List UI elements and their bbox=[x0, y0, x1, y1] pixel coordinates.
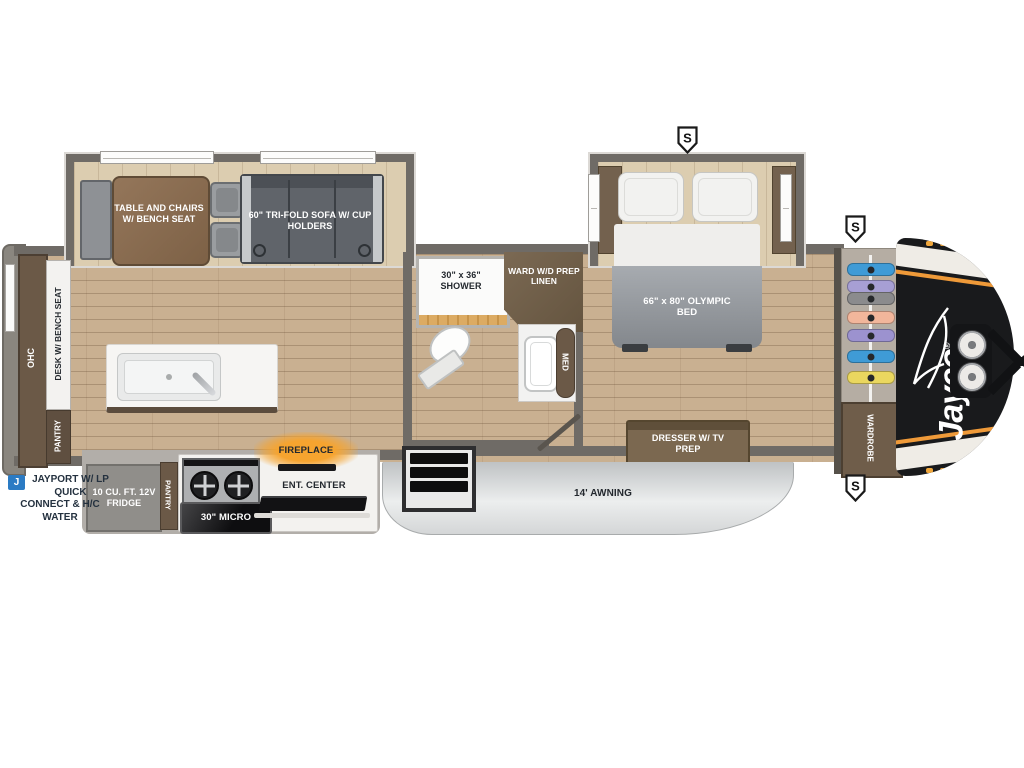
bedroom-front-wall bbox=[834, 248, 841, 474]
pantry-kitchen-label: PANTRY bbox=[164, 480, 173, 510]
propane-tank bbox=[957, 362, 987, 392]
clothes-hanger bbox=[847, 350, 895, 363]
dresser-label: DRESSER W/ TV PREP bbox=[643, 433, 733, 454]
svg-text:S: S bbox=[683, 131, 692, 146]
fireplace-label: FIREPLACE bbox=[256, 445, 356, 456]
burner bbox=[190, 471, 219, 500]
ward-label: WARD W/D PREP LINEN bbox=[508, 266, 580, 286]
desk-label: DESK W/ BENCH SEAT bbox=[53, 287, 63, 380]
bed-foot bbox=[726, 344, 752, 352]
dinette-chair bbox=[210, 222, 244, 258]
jayport-callout: JJAYPORT W/ LP QUICK CONNECT & H/C WATER bbox=[8, 474, 112, 524]
clothes-hanger bbox=[847, 329, 895, 342]
rv-floorplan: TABLE AND CHAIRS W/ BENCH SEAT 60" TRI-F… bbox=[0, 0, 1024, 768]
sofa-label: 60" TRI-FOLD SOFA W/ CUP HOLDERS bbox=[244, 210, 376, 231]
bath-wall-left bbox=[403, 252, 412, 452]
marker-light bbox=[926, 468, 933, 473]
speaker-marker: S bbox=[845, 474, 866, 502]
clothes-hanger bbox=[847, 292, 895, 305]
bed-foot bbox=[622, 344, 648, 352]
shower-label: 30" x 36" SHOWER bbox=[420, 270, 502, 291]
entertainment-tv bbox=[259, 496, 368, 511]
marker-light bbox=[940, 241, 947, 246]
speaker-marker: S bbox=[677, 126, 698, 154]
counter-lip bbox=[254, 513, 370, 518]
rear-window bbox=[5, 264, 15, 332]
window bbox=[260, 151, 376, 164]
window bbox=[100, 151, 214, 164]
sofa-backrest bbox=[242, 176, 382, 188]
marker-light bbox=[926, 241, 933, 246]
dinette-chair bbox=[210, 182, 244, 218]
window bbox=[588, 174, 600, 242]
micro-label: 30" MICRO bbox=[201, 512, 251, 523]
bed-blanket: 66" x 80" OLYMPIC BED bbox=[612, 266, 762, 348]
cup-holder bbox=[253, 244, 266, 257]
wardrobe-label: WARDROBE bbox=[866, 414, 875, 462]
bath-sink bbox=[524, 336, 558, 392]
hitch-a-frame bbox=[988, 328, 1024, 396]
window bbox=[780, 174, 792, 242]
med-label: MED bbox=[561, 353, 570, 371]
svg-text:S: S bbox=[851, 479, 860, 494]
ent-center-label: ENT. CENTER bbox=[256, 480, 372, 491]
cup-holder bbox=[358, 244, 371, 257]
speaker-marker: S bbox=[845, 215, 866, 243]
olympic-bed: 66" x 80" OLYMPIC BED bbox=[612, 166, 762, 354]
pillow bbox=[618, 172, 684, 222]
burner bbox=[224, 471, 253, 500]
cooktop bbox=[182, 458, 260, 504]
kitchen-sink bbox=[117, 353, 221, 401]
step-tread bbox=[410, 481, 468, 492]
awning-label: 14' AWNING bbox=[543, 488, 663, 500]
clothes-hanger bbox=[847, 263, 895, 276]
pantry-rear-label: PANTRY bbox=[54, 420, 63, 452]
microwave: 30" MICRO bbox=[180, 502, 272, 534]
step-tread bbox=[410, 467, 468, 478]
sink-drain bbox=[166, 374, 172, 380]
jayport-label: JAYPORT W/ LP QUICK CONNECT & H/C WATER bbox=[20, 474, 109, 523]
clothes-hanger bbox=[847, 371, 895, 384]
svg-text:S: S bbox=[851, 220, 860, 235]
bench-seat bbox=[80, 180, 112, 260]
wardrobe-wd-prep bbox=[504, 252, 583, 332]
ohc-label: OHC bbox=[26, 348, 36, 368]
bed-sheet bbox=[614, 224, 760, 270]
fireplace-unit bbox=[278, 464, 336, 471]
clothes-hanger bbox=[847, 311, 895, 324]
kitchen-island bbox=[106, 344, 278, 413]
shower bbox=[416, 256, 510, 328]
pillow bbox=[692, 172, 758, 222]
dinette-label: TABLE AND CHAIRS W/ BENCH SEAT bbox=[112, 203, 206, 224]
bed-label: 66" x 80" OLYMPIC BED bbox=[642, 296, 732, 318]
jayport-badge: J bbox=[8, 475, 25, 490]
dresser: DRESSER W/ TV PREP bbox=[626, 420, 750, 468]
shower-threshold bbox=[419, 315, 507, 325]
marker-light bbox=[940, 468, 947, 473]
entry-steps bbox=[402, 446, 476, 512]
propane-tank bbox=[957, 330, 987, 360]
step-tread bbox=[410, 453, 468, 464]
